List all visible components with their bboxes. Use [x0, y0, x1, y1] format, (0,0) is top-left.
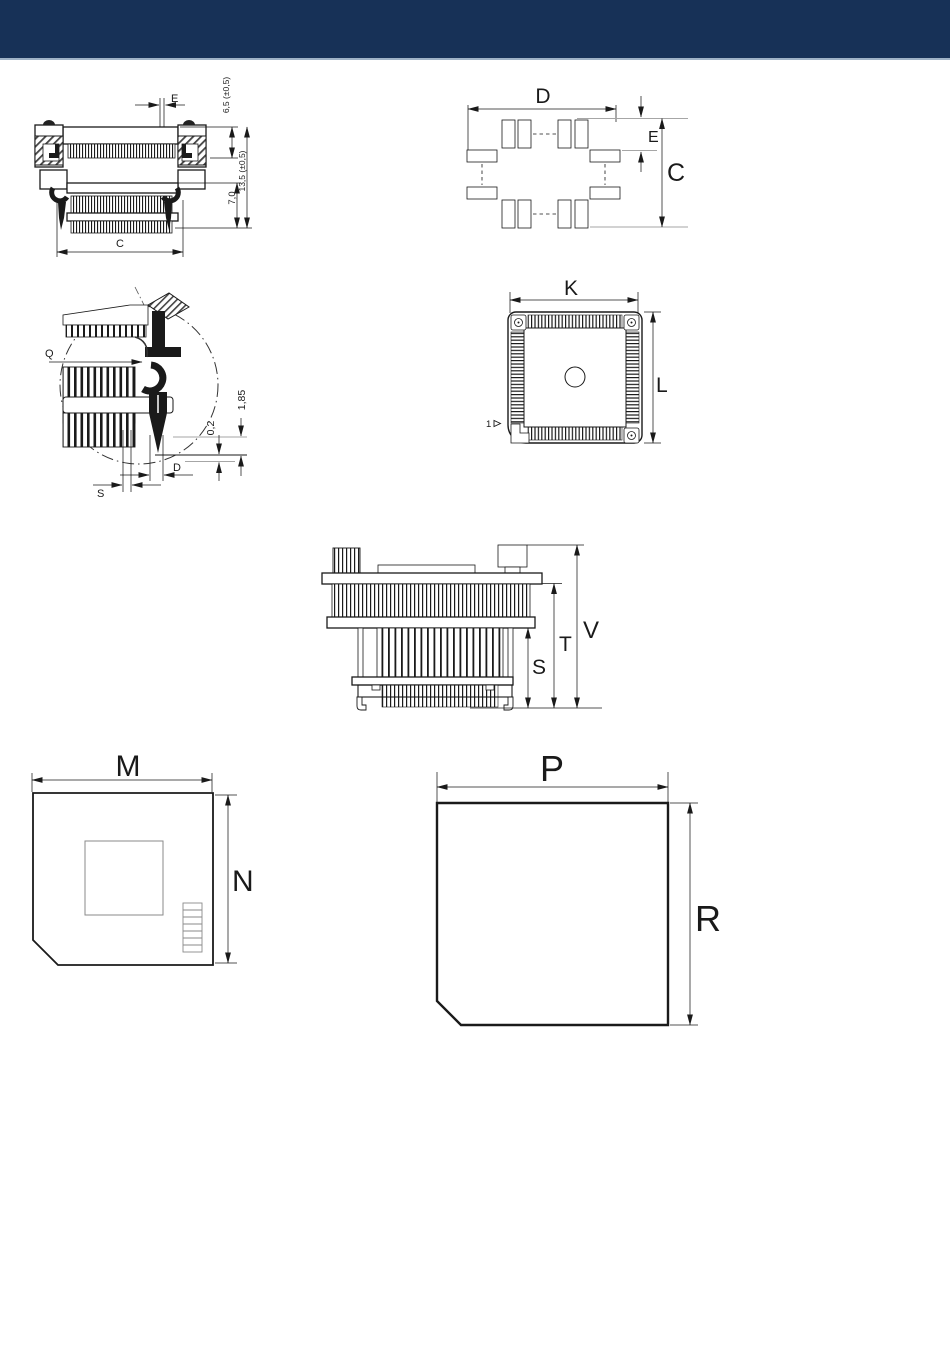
dim-clearance-group: 0,2 [205, 421, 219, 481]
socket-body-top [508, 312, 642, 443]
dim-label-e: E [648, 129, 659, 146]
dim-label-q: Q [45, 348, 54, 360]
pin1-marker: 1 [486, 419, 501, 430]
dim-label-c: C [116, 238, 124, 250]
dim-label-e: E [171, 93, 178, 105]
dim-label-l: L [656, 374, 668, 397]
center-hole [565, 367, 585, 387]
adapter-lower-body [40, 170, 205, 233]
dim-standoff-group: 1,85 [236, 390, 248, 476]
dim-label-upper-height: 6,5 (±0,5) [221, 77, 231, 113]
dim-label-n: N [232, 865, 254, 898]
dim-label-s: S [532, 656, 546, 679]
dim-label-p: P [540, 748, 564, 789]
dim-label-lower-height: 7,0 [227, 191, 238, 204]
dim-label-total-height: 13,5 (±0,5) [237, 150, 247, 191]
pin1-label: 1 [486, 419, 491, 430]
pallet-bottom-drawing: P R [425, 748, 725, 1040]
dim-label-d: D [535, 85, 550, 108]
dim-n-group: N [215, 795, 254, 963]
dim-l-group: L [644, 312, 668, 443]
page-header-bar [0, 0, 950, 60]
contact-comb-section [63, 365, 173, 492]
dim-m-group: M [32, 750, 212, 792]
pad-pattern [467, 120, 620, 228]
dim-label-c: C [667, 159, 685, 187]
top-view-drawing: K 1 L [480, 275, 680, 455]
dim-label-pin-thickness: S [97, 488, 104, 500]
side-view-drawing: V T S [310, 538, 610, 718]
pallet-body [437, 803, 668, 1025]
datasheet-page: { "header": { "bar_color": "#173157", "u… [0, 0, 950, 1346]
stack-assembly [322, 545, 542, 710]
dim-label-v: V [583, 617, 599, 644]
contact-detail-drawing: Q 1,85 0,2 D S [35, 285, 263, 503]
dim-label-m: M [116, 750, 141, 783]
dim-q-group: Q [45, 348, 142, 362]
pallet-body [33, 793, 213, 965]
pallet-top-drawing: M N [25, 745, 265, 980]
footprint-drawing: D E C [450, 82, 700, 242]
dim-r-group: R [670, 803, 721, 1025]
dim-p-group: P [437, 748, 668, 803]
dim-label-pin-width: D [173, 462, 181, 474]
dim-label-standoff: 1,85 [236, 390, 248, 411]
dim-k-group: K [510, 277, 638, 313]
dim-pin-thickness-group: S [93, 485, 161, 500]
cross-section-drawing: E C 6,5 (±0,5) [25, 78, 270, 273]
dim-label-t: T [559, 633, 572, 656]
dim-label-r: R [695, 898, 721, 939]
socket-corner-section [63, 293, 189, 357]
dim-label-k: K [564, 277, 578, 300]
dim-label-clearance: 0,2 [205, 421, 217, 436]
